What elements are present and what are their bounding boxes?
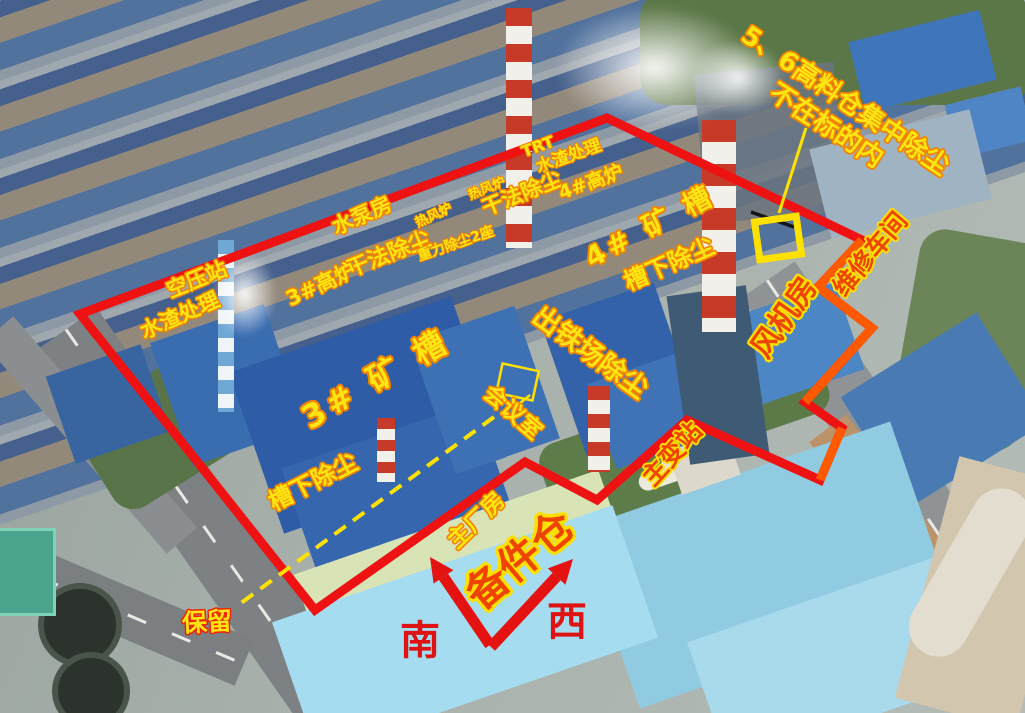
smoke-plume-left <box>212 252 277 337</box>
chimney-top-center <box>506 8 532 248</box>
chimney-center-right <box>702 120 736 332</box>
chimney-small-center <box>588 386 610 472</box>
chimney-small-left <box>377 418 395 482</box>
smoke-plume-mid <box>690 40 785 115</box>
aerial-photo-canvas: 5、6高料仓集中除尘不在标的内水泵房热风炉热风炉TRT水渣处理干法除尘4#高炉干… <box>0 0 1025 713</box>
green-tower-left-edge <box>0 528 56 616</box>
